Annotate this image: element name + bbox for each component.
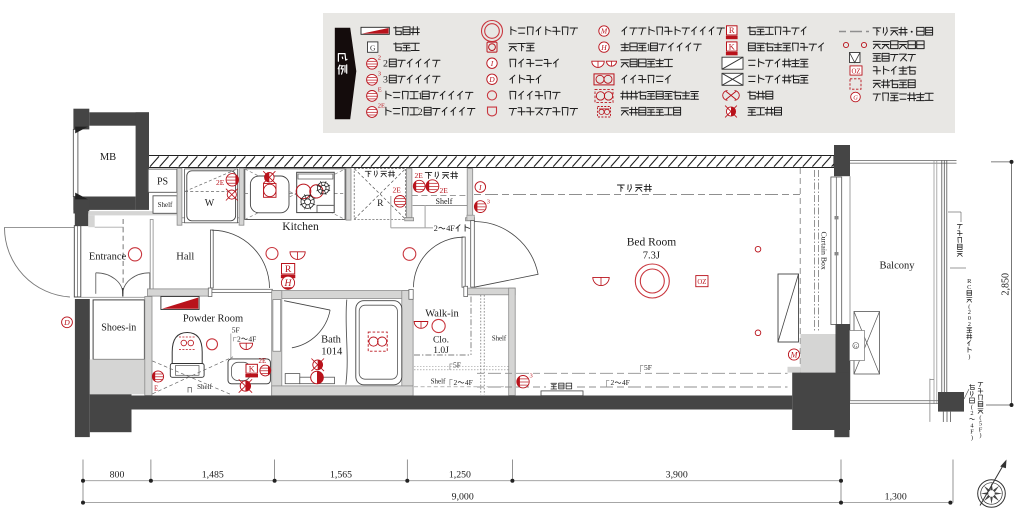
svg-text:Shelf: Shelf <box>492 336 507 343</box>
svg-text:Clo.: Clo. <box>433 336 449 346</box>
svg-text:Hall: Hall <box>176 252 194 263</box>
svg-text:Curtain Box: Curtain Box <box>820 232 829 270</box>
svg-text:E: E <box>154 385 158 393</box>
svg-text:D: D <box>63 318 70 327</box>
svg-text:H: H <box>600 43 607 52</box>
svg-text:5F: 5F <box>453 361 461 370</box>
svg-text:2: 2 <box>968 321 971 328</box>
svg-text:R: R <box>285 264 292 275</box>
svg-text:1014: 1014 <box>321 347 343 358</box>
svg-text:3: 3 <box>383 75 388 86</box>
svg-text:K: K <box>249 364 255 373</box>
svg-text:7.3J: 7.3J <box>643 251 660 262</box>
svg-text:4F: 4F <box>622 378 630 387</box>
svg-text:800: 800 <box>110 470 125 481</box>
svg-text:2E: 2E <box>393 186 402 195</box>
svg-text:2E: 2E <box>378 103 385 110</box>
svg-text:Entrance: Entrance <box>89 252 127 263</box>
svg-text:Walk-in: Walk-in <box>425 309 459 320</box>
svg-text:2: 2 <box>378 54 381 61</box>
svg-text:K: K <box>729 41 736 51</box>
svg-text:2: 2 <box>454 378 458 387</box>
svg-text:M: M <box>790 350 799 359</box>
svg-text:MB: MB <box>100 152 116 163</box>
svg-text:Shelf: Shelf <box>431 378 446 386</box>
svg-text:1,250: 1,250 <box>449 470 471 481</box>
svg-text:C: C <box>967 284 971 291</box>
svg-text:E: E <box>378 87 382 94</box>
svg-text:Bath: Bath <box>321 335 342 346</box>
svg-text:W: W <box>205 198 215 209</box>
svg-text:PS: PS <box>157 177 168 188</box>
svg-text:Bed Room: Bed Room <box>627 237 677 249</box>
svg-text:): ) <box>979 432 981 439</box>
svg-text:3,900: 3,900 <box>666 470 688 481</box>
svg-text:2,850: 2,850 <box>1001 273 1012 296</box>
svg-text:Shoes-in: Shoes-in <box>101 323 136 334</box>
svg-text:I: I <box>478 183 482 192</box>
svg-text:1,485: 1,485 <box>202 470 224 481</box>
svg-text:2E: 2E <box>259 357 267 365</box>
svg-text:1,300: 1,300 <box>885 492 907 503</box>
svg-text:Kitchen: Kitchen <box>282 221 319 233</box>
svg-text:2E: 2E <box>440 186 449 195</box>
svg-text:2E: 2E <box>415 171 424 180</box>
svg-text:2: 2 <box>418 107 423 118</box>
svg-text:): ) <box>968 354 970 361</box>
svg-text:Shelf: Shelf <box>158 201 173 209</box>
svg-text:3: 3 <box>487 199 490 206</box>
svg-text:2: 2 <box>237 334 241 343</box>
svg-text:1,565: 1,565 <box>330 470 352 481</box>
svg-text:2: 2 <box>383 59 388 70</box>
svg-text:9,000: 9,000 <box>452 492 474 503</box>
svg-text:Powder Room: Powder Room <box>183 314 243 325</box>
svg-text:4F: 4F <box>446 224 455 233</box>
svg-text:OZ: OZ <box>851 68 860 75</box>
svg-text:Balcony: Balcony <box>880 261 916 272</box>
svg-text:M: M <box>600 27 608 36</box>
svg-text:2: 2 <box>611 378 615 387</box>
svg-text:1.0J: 1.0J <box>433 346 449 356</box>
svg-text:3: 3 <box>530 373 533 380</box>
svg-text:2: 2 <box>434 224 438 233</box>
svg-text:R: R <box>377 199 384 209</box>
svg-text:2: 2 <box>970 410 973 417</box>
svg-text:4F: 4F <box>465 378 473 387</box>
svg-text:2E: 2E <box>216 178 225 187</box>
svg-text:5F: 5F <box>232 326 240 335</box>
svg-text:5F: 5F <box>644 363 652 372</box>
svg-text:3: 3 <box>378 71 381 78</box>
svg-text:R: R <box>729 25 735 35</box>
svg-text:D: D <box>488 75 495 84</box>
svg-text:G: G <box>853 94 858 101</box>
svg-text:Shelf: Shelf <box>197 383 212 391</box>
svg-text:G: G <box>370 43 376 52</box>
svg-text:OZ: OZ <box>697 279 706 286</box>
svg-text:Shelf: Shelf <box>436 197 453 206</box>
svg-text:I: I <box>490 59 494 68</box>
svg-text:4F: 4F <box>248 334 256 343</box>
svg-text:): ) <box>971 434 973 441</box>
